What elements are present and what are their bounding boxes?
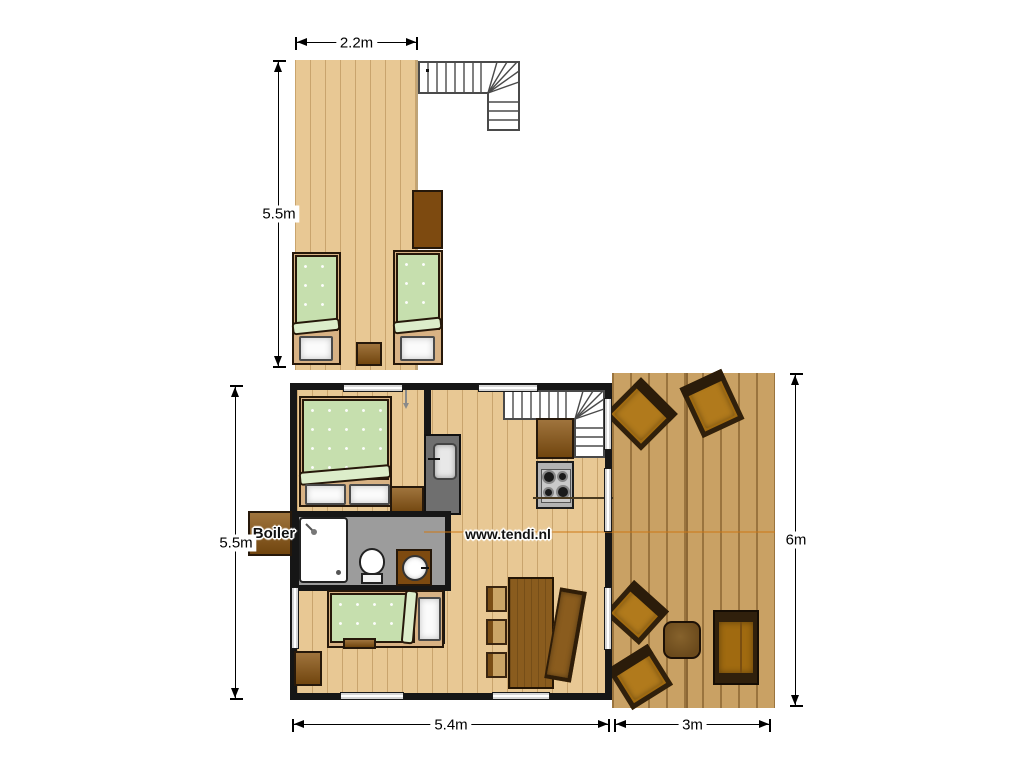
dimension-label: 3m (678, 717, 707, 734)
watermark-text: www.tendi.nl (450, 526, 566, 542)
dimension-label: 6m (782, 532, 811, 549)
dining-chair-3 (486, 652, 507, 678)
dimension-label: 5.5m (258, 206, 299, 223)
dimension-ground-width: 5.4m (292, 724, 610, 725)
bedroom-partition-wall (424, 390, 431, 436)
dining-chair-2 (486, 619, 507, 645)
single-bed-upper-right (393, 250, 443, 365)
dimension-upper-width: 2.2m (295, 42, 418, 43)
dimension-deck-length: 6m (795, 373, 796, 707)
pillow (299, 336, 333, 361)
dimension-deck-width: 3m (614, 724, 771, 725)
gas-stove (536, 461, 574, 509)
pillow (418, 597, 441, 641)
deck-coffee-table (663, 621, 701, 659)
dimension-label: 5.5m (215, 534, 256, 551)
faucet-icon (428, 458, 440, 460)
double-bed (299, 396, 392, 507)
pillow (400, 336, 435, 361)
door-swing-mark (405, 390, 407, 404)
window-right-3 (604, 587, 612, 650)
window-right-1 (604, 398, 612, 450)
window-top-1 (343, 384, 403, 392)
burner-icon (545, 489, 552, 496)
pillow (305, 484, 346, 505)
dimension-label: 5.4m (430, 717, 471, 734)
toilet-tank (361, 573, 383, 584)
dimension-label: 2.2m (336, 35, 377, 52)
corner-cabinet (294, 651, 322, 686)
dimension-ground-length: 5.5m (235, 385, 236, 700)
toilet (359, 548, 385, 575)
window-left-1 (291, 587, 299, 649)
drain-icon (336, 570, 341, 575)
dimension-upper-length: 5.5m (278, 60, 279, 368)
wall-table-line (533, 497, 613, 499)
shower-head-icon (303, 521, 321, 539)
burner-icon (544, 472, 554, 482)
bed-bench (343, 638, 376, 649)
burner-icon (559, 473, 566, 480)
shower (299, 517, 348, 583)
window-bottom-2 (492, 692, 550, 700)
window-top-2 (478, 384, 538, 392)
dining-chair-1 (486, 586, 507, 612)
burner-icon (558, 487, 568, 497)
kitchen-cabinet (536, 418, 574, 459)
sink-basin (433, 443, 457, 480)
kitchen-sink-unit (424, 434, 461, 515)
sofa-cushion (719, 622, 753, 673)
staircase-upper-icon (418, 61, 520, 131)
side-table-upper (356, 342, 382, 366)
wardrobe (412, 190, 443, 249)
floor-plan-canvas: 2.2m 5.5m (0, 0, 1024, 768)
pillow (349, 484, 390, 505)
single-bed-upper-left (292, 252, 341, 365)
faucet-icon (421, 567, 429, 569)
window-bottom-1 (340, 692, 404, 700)
deck-seam (612, 531, 775, 533)
window-right-2 (604, 468, 612, 532)
deck-sofa (713, 610, 759, 685)
washbasin-vanity (396, 549, 432, 586)
